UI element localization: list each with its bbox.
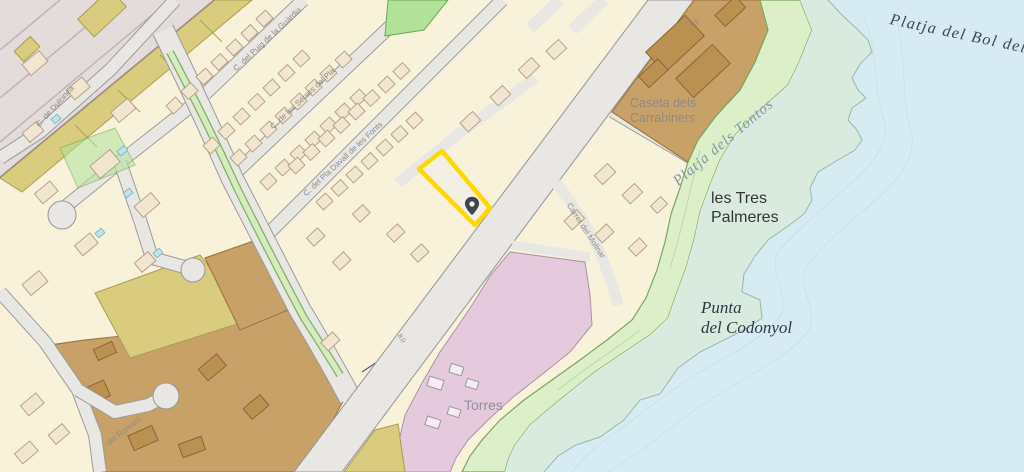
map-graphics — [0, 0, 1024, 472]
label-punta-1: Punta — [701, 299, 742, 317]
label-tres-palmeres-2: Palmeres — [711, 210, 779, 227]
label-tres-palmeres-1: les Tres — [711, 191, 767, 208]
label-punta-2: del Codonyol — [701, 319, 792, 337]
label-torres: Torres — [464, 398, 503, 413]
label-caseta-1: Caseta dels — [630, 97, 696, 110]
map-canvas[interactable]: Platja del Bol del Gos Platja dels Tonto… — [0, 0, 1024, 472]
label-caseta-2: Carrabiners — [630, 112, 695, 125]
